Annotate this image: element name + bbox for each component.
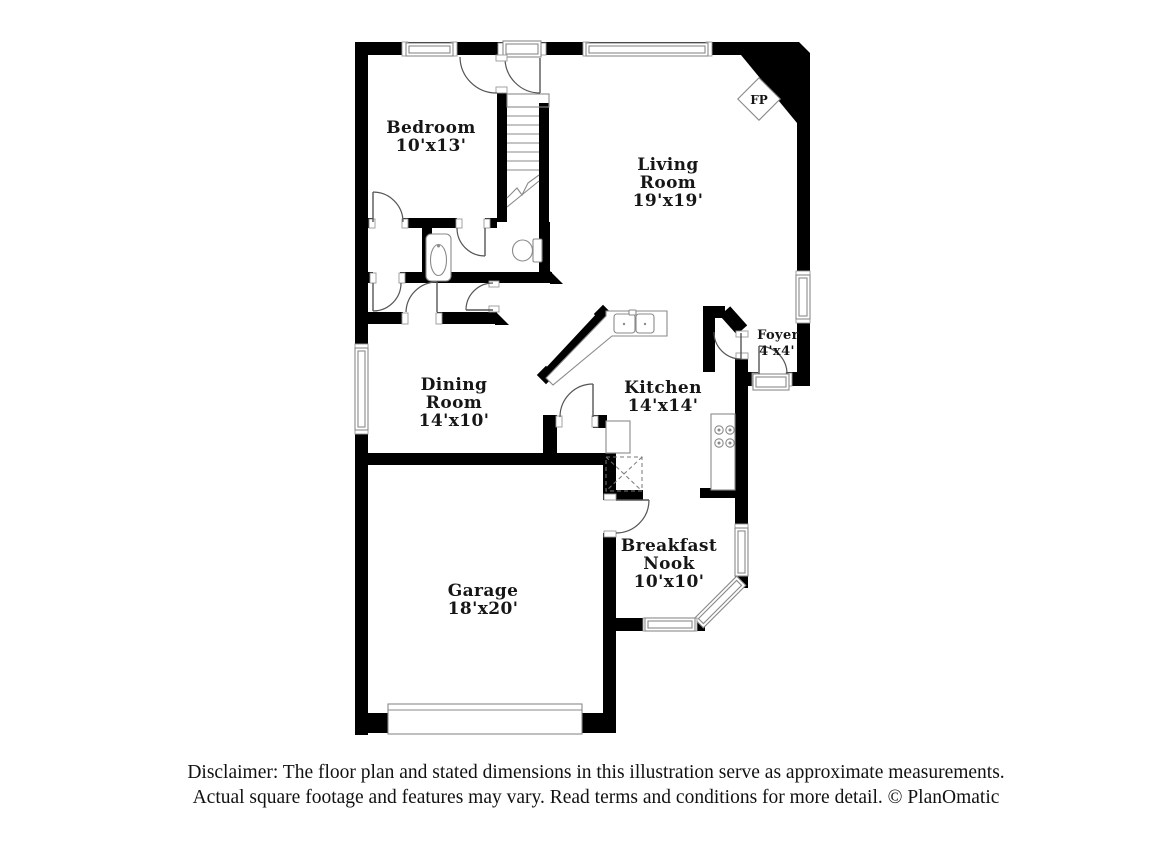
living-name-1: Living [637,155,698,175]
hall-living-door [466,281,499,312]
bathtub-faucet-dot [437,245,440,248]
bathtub [426,234,451,281]
floor-plan-page: FP Bedroom 10'x13' Living Room 19'x19' F… [0,0,1161,844]
refrigerator [606,421,630,453]
garage-door [388,704,582,734]
living-room-side-window [796,271,810,323]
bedroom-closet-door [369,192,408,228]
dining-name-1: Dining [421,375,488,395]
foyer-dims: 4'x4' [759,344,795,359]
garage-nook-door [604,494,649,537]
dining-dims: 14'x10' [419,411,490,431]
foyer-name: Foyer [757,328,799,343]
stove-counter [711,414,735,490]
floor-plan-drawing: FP Bedroom 10'x13' Living Room 19'x19' F… [0,0,1161,844]
room-label-breakfast-nook: Breakfast Nook 10'x10' [621,536,717,592]
sink-drain-dot [623,323,625,325]
room-label-living-room: Living Room 19'x19' [633,155,704,211]
disclaimer-line-2: Actual square footage and features may v… [193,787,1000,808]
bathroom-door [456,219,490,256]
foyer-closet-angled-wall [725,311,742,330]
nook-name-2: Nook [643,554,695,574]
room-label-dining-room: Dining Room 14'x10' [419,375,490,431]
bedroom-name: Bedroom [386,118,476,138]
front-entry-top-door [498,41,546,93]
breakfast-nook-side-window [735,524,748,576]
room-label-foyer: Foyer 4'x4' [757,328,799,359]
living-name-2: Room [640,173,696,193]
dining-hall-door [402,282,442,324]
nook-dims: 10'x10' [634,572,705,592]
room-label-garage: Garage 18'x20' [448,581,519,619]
wall-end-arrow [550,271,563,284]
dining-room-window [355,344,368,434]
kitchen-name: Kitchen [624,378,702,398]
bedroom-dims: 10'x13' [396,136,467,156]
stair-treads [507,116,539,170]
foyer-closet-door [714,331,748,359]
living-dims: 19'x19' [633,191,704,211]
fireplace-label: FP [750,93,768,107]
kitchen-dims: 14'x14' [628,396,699,416]
wall-end-arrow [495,311,509,325]
kitchen-passage-door [556,384,598,427]
toilet-icon [513,239,543,262]
stair-break-line [507,175,539,207]
bedroom-door [460,55,507,93]
bedroom-window [402,42,457,56]
faucet-icon [629,310,636,315]
living-room-window [583,42,712,56]
garage-name: Garage [448,581,519,601]
sink-drain-dot [644,323,646,325]
garage-dims: 18'x20' [448,599,519,619]
disclaimer-line-1: Disclaimer: The floor plan and stated di… [187,762,1004,783]
room-label-bedroom: Bedroom 10'x13' [386,118,476,156]
room-label-kitchen: Kitchen 14'x14' [624,378,702,416]
disclaimer: Disclaimer: The floor plan and stated di… [187,762,1004,808]
breakfast-nook-bottom-window [643,618,697,631]
hall-closet-door [370,273,405,311]
nook-name-1: Breakfast [621,536,717,556]
dining-name-2: Room [426,393,482,413]
